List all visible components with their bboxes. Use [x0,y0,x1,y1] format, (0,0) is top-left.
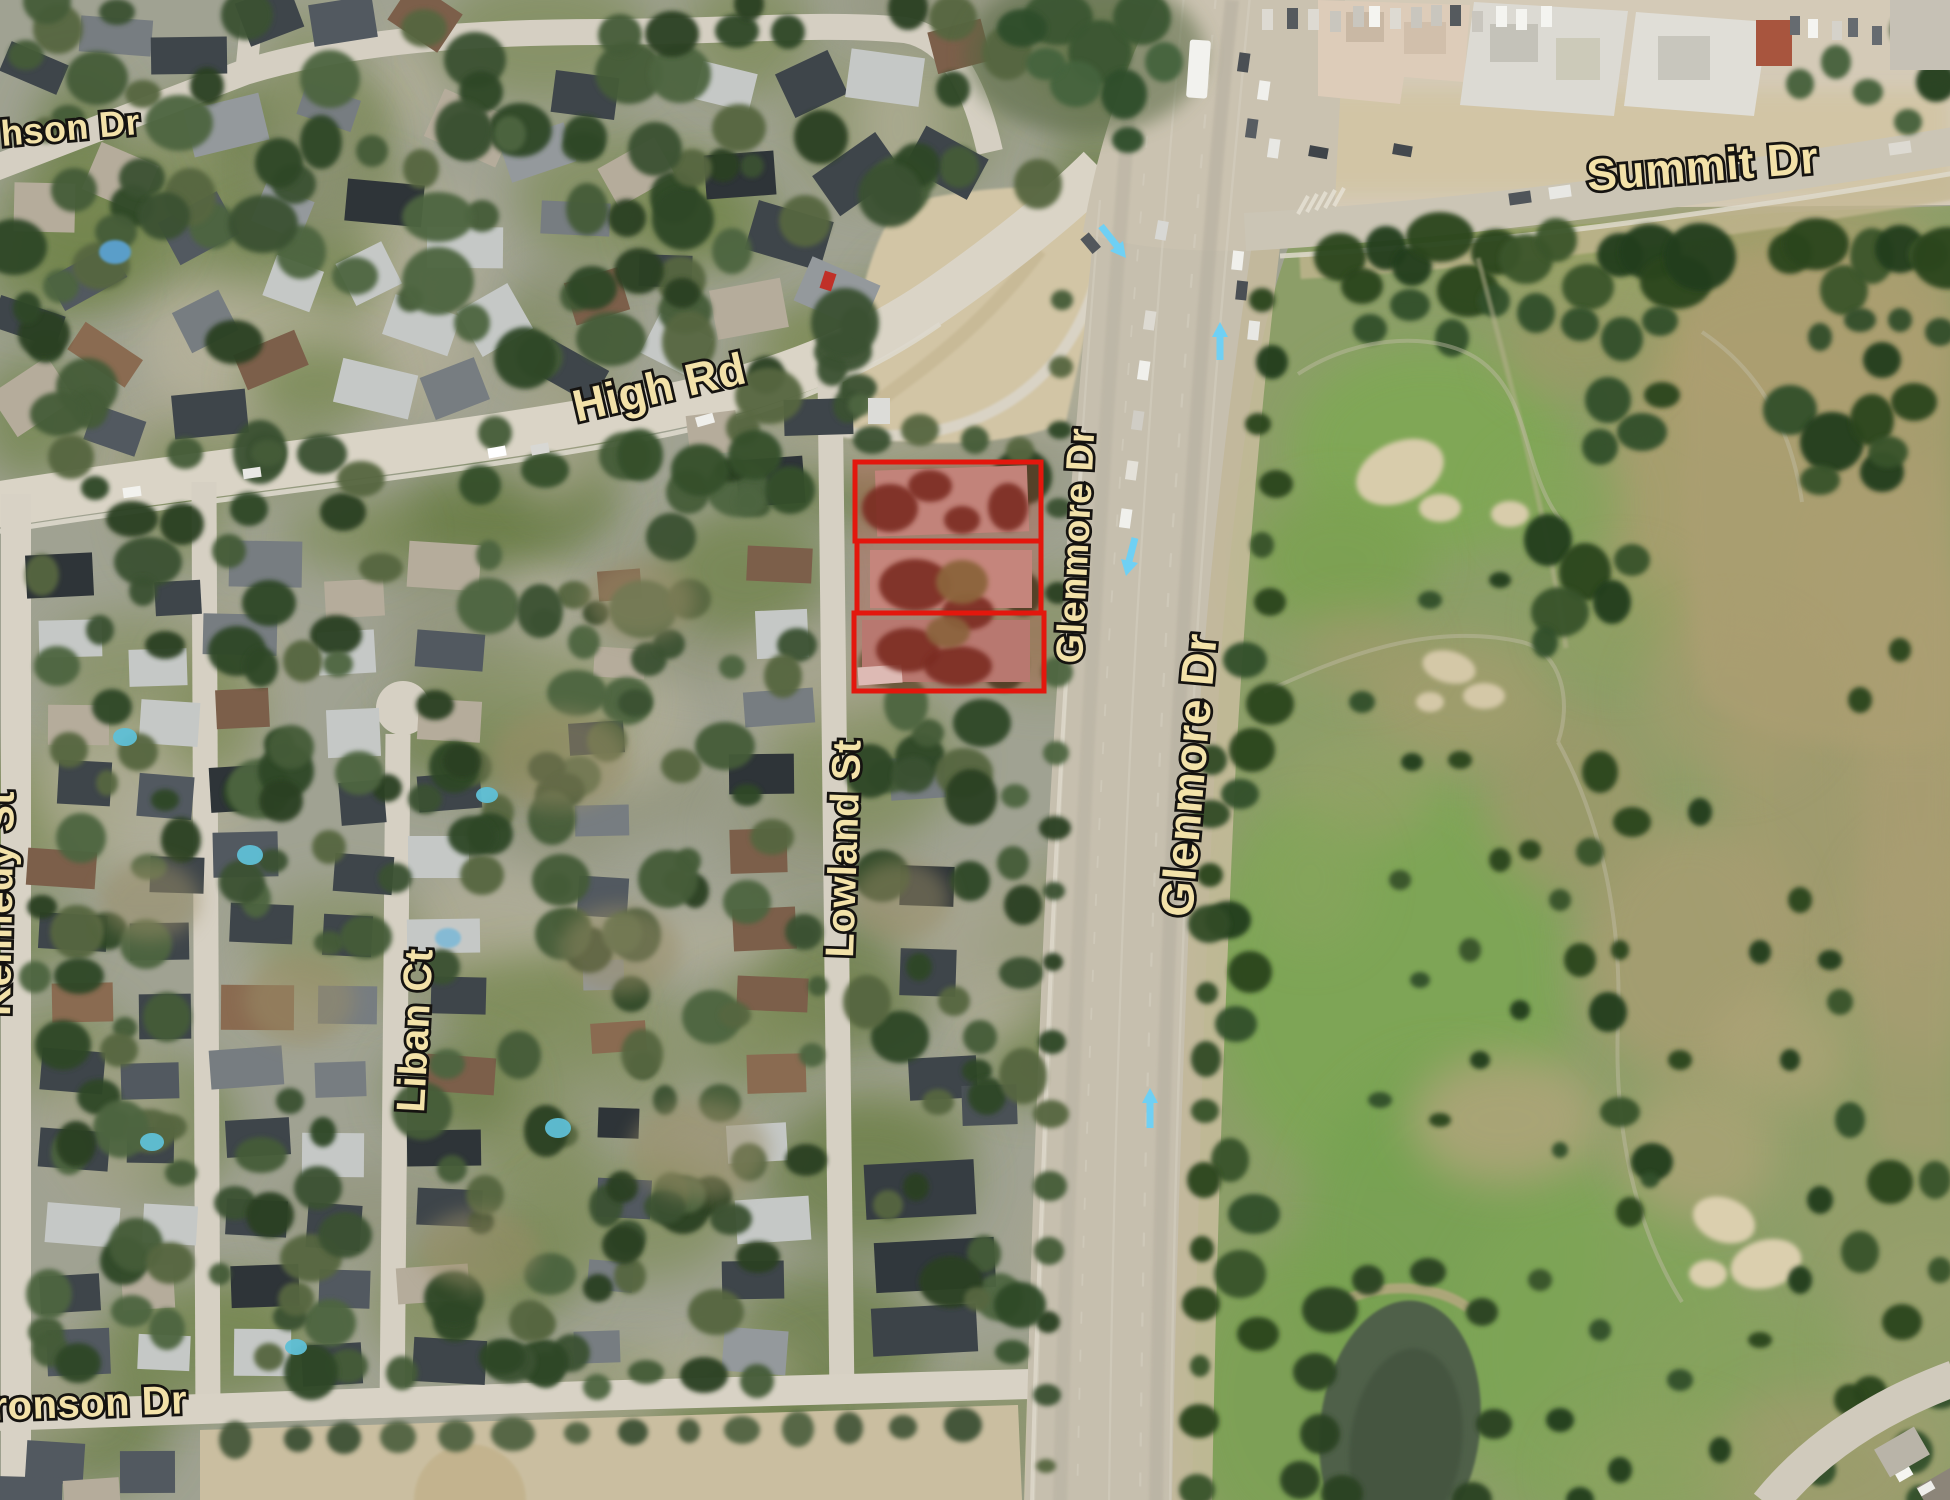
svg-text:Kennedy St: Kennedy St [0,790,23,1016]
svg-text:Liban Ct: Liban Ct [389,947,442,1113]
svg-text:Lowland St: Lowland St [818,739,870,959]
svg-text:ronson Dr: ronson Dr [0,1378,188,1429]
